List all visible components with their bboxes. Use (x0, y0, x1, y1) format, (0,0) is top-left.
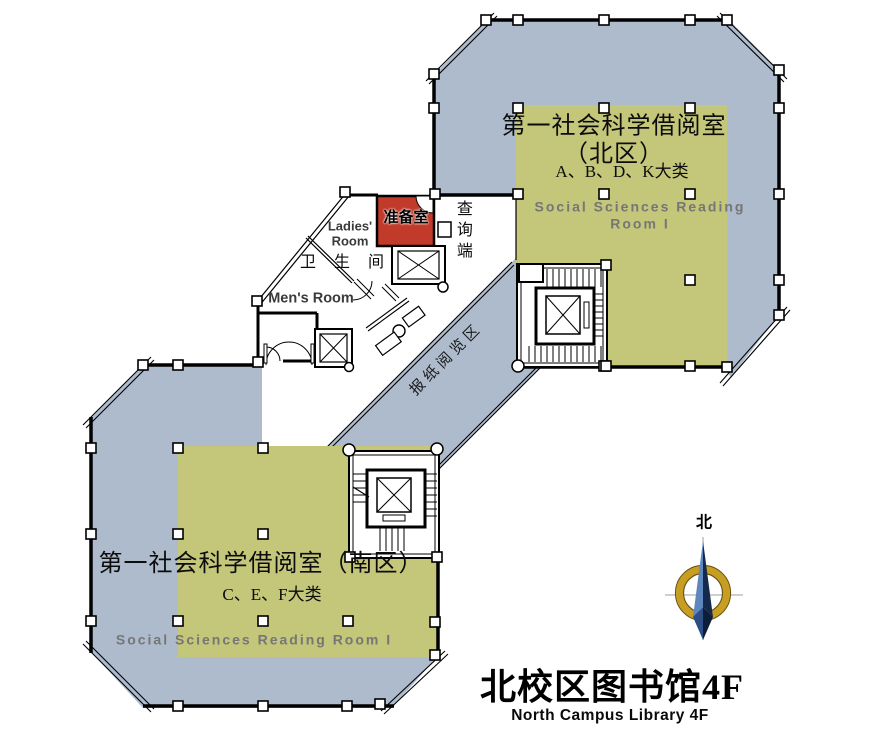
column-marker (343, 616, 353, 626)
column-marker (86, 443, 96, 453)
mens-elevator-icon (315, 329, 352, 367)
column-marker (432, 552, 442, 562)
column-marker (340, 187, 350, 197)
column-marker (685, 275, 695, 285)
query-terminal-box (438, 222, 451, 237)
round-column (431, 443, 443, 455)
column-marker (481, 15, 491, 25)
column-marker (173, 529, 183, 539)
compass (665, 537, 743, 640)
column-marker (599, 103, 609, 113)
column-marker (429, 69, 439, 79)
column-marker (342, 701, 352, 711)
floor-plan-canvas: 第一社会科学借阅室（北区） A、B、D、K大类 Social Sciences … (0, 0, 887, 730)
compass-north-label: 北 (696, 515, 712, 534)
column-marker (86, 529, 96, 539)
column-marker (685, 15, 695, 25)
round-column (438, 282, 448, 292)
column-marker (138, 360, 148, 370)
column-marker (774, 189, 784, 199)
north-arrow-right (703, 541, 713, 617)
lobby-furniture (366, 298, 425, 355)
north-wing-title: 第一社会科学借阅室（北区） (478, 113, 751, 170)
column-marker (685, 361, 695, 371)
column-marker (173, 616, 183, 626)
bench (402, 306, 425, 327)
column-marker (252, 296, 262, 306)
column-marker (258, 701, 268, 711)
south-staircase-icon (349, 451, 439, 558)
column-marker (774, 65, 784, 75)
column-marker (258, 529, 268, 539)
column-marker (722, 362, 732, 372)
south-wing-subtitle: Social Sciences Reading Room I (116, 632, 392, 649)
column-marker (774, 275, 784, 285)
column-marker (601, 361, 611, 371)
north-wing-categories: A、B、D、K大类 (555, 162, 688, 182)
column-marker (429, 103, 439, 113)
column-marker (601, 260, 611, 270)
door-leaf (264, 344, 267, 363)
south-wing-title: 第一社会科学借阅室（南区） (99, 550, 424, 578)
column-marker (375, 699, 385, 709)
query-terminal-label: 查询端 (452, 200, 471, 263)
column-marker (513, 15, 523, 25)
column-marker (513, 103, 523, 113)
stair-landing (519, 264, 543, 282)
bench (376, 332, 402, 355)
column-marker (86, 616, 96, 626)
column-marker (173, 443, 183, 453)
column-marker (774, 103, 784, 113)
column-marker (599, 15, 609, 25)
north-arrow-left (693, 541, 703, 617)
core-diagonal-wall (256, 193, 354, 306)
door-leaf (311, 344, 314, 363)
round-column (345, 363, 354, 372)
column-marker (253, 357, 263, 367)
page-title: 北校区图书馆4F (480, 666, 744, 708)
prep-room-label: 准备室 (383, 210, 428, 228)
column-marker (430, 617, 440, 627)
north-wing-subtitle: Social Sciences Reading Room I (517, 198, 764, 231)
round-column (343, 444, 355, 456)
north-staircase-icon (517, 264, 607, 367)
page-subtitle: North Campus Library 4F (511, 707, 709, 725)
column-marker (774, 310, 784, 320)
column-marker (258, 616, 268, 626)
mens-room-label: Men's Room (268, 290, 354, 307)
column-marker (685, 103, 695, 113)
column-marker (258, 443, 268, 453)
column-marker (173, 701, 183, 711)
south-wing-categories: C、E、F大类 (222, 585, 321, 605)
column-marker (173, 360, 183, 370)
column-marker (722, 15, 732, 25)
ladies-room-label: Ladies' Room (328, 219, 372, 250)
round-column (512, 360, 524, 372)
restroom-label: 卫生间 (300, 254, 402, 273)
column-marker (430, 650, 440, 660)
column-marker (430, 189, 440, 199)
